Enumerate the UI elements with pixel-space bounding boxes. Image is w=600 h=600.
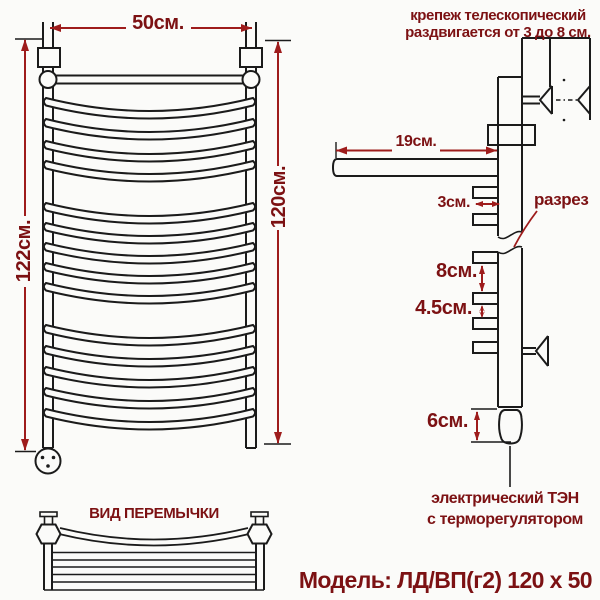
heater-caption: электрический ТЭН с терморегулятором (405, 488, 600, 530)
dimension-width-label: 50см. (125, 13, 191, 35)
dimension-gap-medium-label: 4.5см. (398, 298, 472, 320)
bottom-view-title: ВИД ПЕРЕМЫЧКИ (80, 506, 228, 522)
dimension-rung-offset-label: 3см. (426, 194, 470, 211)
dimension-heater-label: 6см. (414, 411, 468, 433)
note-line-2: раздвигается от 3 до 8 см. (405, 24, 591, 41)
dimension-shelf-depth-label: 19см. (386, 133, 446, 150)
ladder-rungs (44, 98, 255, 430)
section-leader-line (514, 211, 537, 247)
plug-connector (36, 449, 61, 474)
dimension-height-rail-label: 120см. (269, 166, 291, 228)
dimension-height-overall-label: 122см. (14, 220, 36, 282)
model-designation: Модель: ЛД/ВП(г2) 120 х 50 (298, 568, 592, 593)
heater-caption-line-1: электрический ТЭН (431, 490, 579, 507)
telescopic-bracket-note: крепеж телескопический раздвигается от 3… (396, 8, 600, 41)
section-label: разрез (534, 191, 588, 209)
bottom-view-drawing (37, 512, 272, 590)
note-line-1: крепеж телескопический (410, 7, 586, 24)
dimension-extension-lines (15, 39, 511, 452)
dimension-gap-large-label: 8см. (425, 261, 477, 283)
heater-caption-line-2: с терморегулятором (427, 511, 583, 528)
technical-drawing-towel-rail: крепеж телескопический раздвигается от 3… (0, 0, 600, 600)
